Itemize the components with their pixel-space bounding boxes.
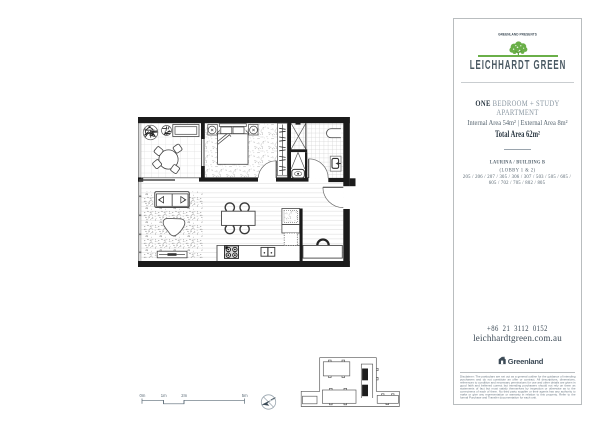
svg-text:2m: 2m xyxy=(181,393,187,398)
svg-text:Greenland: Greenland xyxy=(508,357,544,366)
svg-text:5m: 5m xyxy=(242,393,248,398)
svg-text:1m: 1m xyxy=(161,393,167,398)
svg-text:0m: 0m xyxy=(140,393,146,398)
